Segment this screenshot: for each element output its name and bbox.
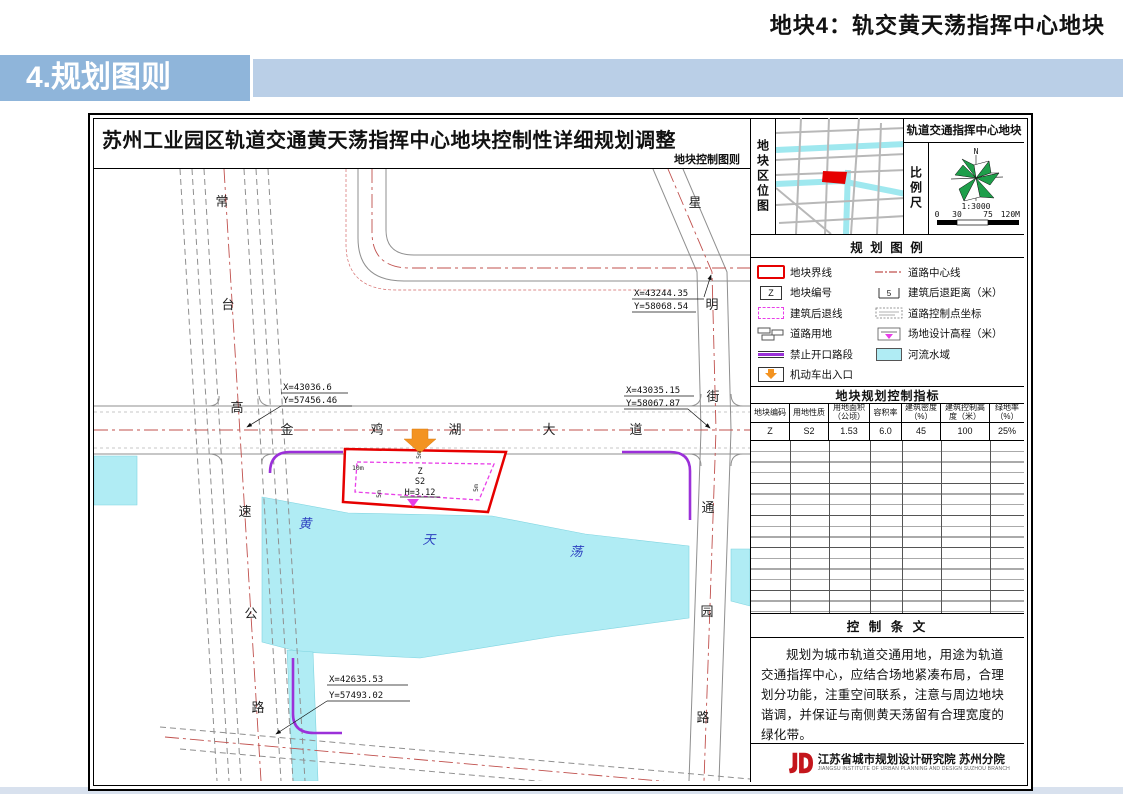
coord-x: X=43036.6 [283,383,332,393]
scale-bar-label: 比例尺 [904,143,929,234]
scale-row: 比例尺 N [904,143,1024,234]
sheet-title-block: 苏州工业园区轨道交通黄天荡指挥中心地块控制性详细规划调整 地块控制图则 [94,119,750,169]
publisher-block: 江苏省城市规划设计研究院 苏州分院 JIANGSU INSTITUTE OF U… [751,744,1024,782]
legend-label: 建筑后退距离（米） [908,285,1003,300]
road-char: 道 [629,422,642,437]
parcel-code-icon: Z [757,286,785,300]
col-header: 容积率 [870,404,902,422]
sheet-subtitle: 地块控制图则 [674,151,740,167]
cell-far: 6.0 [870,423,902,441]
building-setback-icon [757,306,785,320]
location-right: 轨道交通指挥中心地块 比例尺 N [904,118,1024,234]
setback-left-label: 10m [352,464,364,472]
road-char: 鸡 [370,422,383,437]
planning-sheet-page: 地块4：轨交黄天荡指挥中心地块 4.规划图则 苏州工业园区轨道交通黄天荡指挥中心… [0,0,1123,794]
coord-y: Y=57493.02 [329,691,383,701]
coord-x: X=42635.53 [329,675,383,685]
water-char: 黄 [298,516,313,531]
legend-label: 禁止开口路段 [790,347,853,362]
scale-bar-icon [937,220,1019,225]
legend-item: 5 建筑后退距离（米） [875,283,1022,304]
legend-label: 建筑后退线 [790,306,843,321]
plan-map: Z S2 H=3.12 10m 5m 5m 5m 常 台 高 速 公 路 金 鸡 [94,169,750,781]
compass-and-scale: N [929,143,1024,229]
cell-green: 25% [990,423,1024,441]
setback-right-label: 5m [472,484,480,492]
legend-item: 机动车出入口 [757,365,875,386]
scale-tick: 30 [952,210,962,219]
legend-title: 规 划 图 例 [751,235,1024,258]
setback-top-label: 5m [415,451,423,459]
scale-tick: 120M [1001,210,1020,219]
col-header: 建筑控制高度（米） [941,404,990,422]
road-char: 台 [221,297,234,312]
publisher-name: 江苏省城市规划设计研究院 苏州分院 [818,754,1010,767]
road-char: 路 [251,700,264,715]
info-panel: 地块区位图 轨道交通指挥中心地块 [750,118,1024,782]
sheet-title: 苏州工业园区轨道交通黄天荡指挥中心地块控制性详细规划调整 [102,124,742,153]
legend-section: 规 划 图 例 地块界线 Z 地块编号 建筑后退线 [751,235,1024,387]
road-char: 明 [705,297,718,312]
page-title: 地块4：轨交黄天荡指挥中心地块 [770,8,1105,40]
section-banner-label: 4.规划图则 [26,61,171,94]
coord-y: Y=57456.46 [283,396,337,406]
cell-height: 100 [941,423,990,441]
legend-label: 河流水域 [908,347,950,362]
site-elevation-icon [875,327,903,341]
provisions-body: 规划为城市轨道交通用地，用途为轨道交通指挥中心，应结合场地紧凑布局，合理划分功能… [751,638,1024,744]
water-char: 天 [422,532,437,547]
legend-item: 道路中心线 [875,262,1022,283]
road-char: 常 [215,194,228,209]
col-header: 用地性质 [790,404,829,422]
location-row: 地块区位图 轨道交通指挥中心地块 [751,118,1024,235]
scale-tick: 75 [983,210,993,219]
parcel-code: Z [417,467,422,477]
legend-label: 道路中心线 [908,265,961,280]
legend-item: Z 地块编号 [757,283,875,304]
col-header: 地块编码 [751,404,790,422]
road-char: 金 [280,422,293,437]
indicators-table: 地块规划控制指标 地块编码 用地性质 用地面积（公顷） 容积率 建筑密度（%） … [751,387,1024,441]
indicators-title: 地块规划控制指标 [751,387,1024,404]
road-char: 星 [688,195,701,210]
minimap-parcel [822,171,847,184]
setback-bottom-label: 5m [375,490,383,498]
road-char: 公 [244,606,257,621]
no-access-icon [757,347,785,361]
road-char: 园 [700,604,713,619]
publisher-logo-icon [787,750,813,776]
parcel-boundary-icon [757,265,785,279]
legend-label: 地块界线 [790,265,832,280]
section-banner-extension [253,59,1123,97]
road-land-icon [757,327,785,341]
legend-label: 场地设计高程（米） [908,326,1003,341]
indicators-data-row: Z S2 1.53 6.0 45 100 25% [751,423,1024,441]
publisher-name-en: JIANGSU INSTITUTE OF URBAN PLANNING AND … [818,767,1010,773]
legend-label: 机动车出入口 [790,367,853,382]
cell-density: 45 [902,423,941,441]
legend-item: 地块界线 [757,262,875,283]
drawing-sheet: 苏州工业园区轨道交通黄天荡指挥中心地块控制性详细规划调整 地块控制图则 [88,113,1033,791]
legend-label: 道路控制点坐标 [908,306,982,321]
svg-text:5: 5 [887,289,892,298]
coord-x: X=43244.35 [634,289,688,299]
empty-grid-rows [751,441,1024,614]
location-minimap [776,118,904,234]
col-header: 用地面积（公顷） [829,404,870,422]
location-map-label: 地块区位图 [751,118,776,234]
road-char: 速 [238,504,251,519]
road-char: 街 [706,389,719,404]
setback-distance-icon: 5 [875,286,903,300]
road-char: 高 [230,400,243,415]
vehicle-entrance-icon [757,368,785,382]
road-char: 大 [542,422,555,437]
cell-area: 1.53 [829,423,870,441]
road-centerline-icon [875,265,903,279]
compass-cell: N [929,143,1024,234]
coord-x: X=43035.15 [626,386,680,396]
adjacent-setback-line [346,169,670,290]
cell-parcel-code: Z [751,423,790,441]
location-minimap-svg [776,118,904,234]
location-title: 轨道交通指挥中心地块 [904,118,1024,143]
legend-item: 道路控制点坐标 [875,303,1022,324]
road-char: 通 [701,500,714,515]
provisions-title: 控 制 条 文 [751,614,1024,638]
section-banner: 4.规划图则 [0,55,250,101]
legend-item: 场地设计高程（米） [875,324,1022,345]
road-char: 湖 [448,422,461,437]
compass-north-label: N [974,147,979,156]
coord-y: Y=58068.54 [634,302,688,312]
coord-y: Y=58067.87 [626,399,680,409]
river-water-icon [875,347,903,361]
legend-item: 河流水域 [875,344,1022,365]
legend-item: 禁止开口路段 [757,344,875,365]
scale-tick: 0 [935,210,940,219]
road-char: 路 [696,710,709,725]
road-control-point-icon [875,306,903,320]
legend-item: 建筑后退线 [757,303,875,324]
indicators-header-row: 地块编码 用地性质 用地面积（公顷） 容积率 建筑密度（%） 建筑控制高度（米）… [751,404,1024,423]
legend-label: 地块编号 [790,285,832,300]
water-char: 荡 [569,544,584,559]
parcel-elevation: H=3.12 [405,488,436,498]
parcel-land-use: S2 [415,477,425,487]
coord-callout-3: X=43036.6 Y=57456.46 [247,383,352,427]
col-header: 绿地率（%） [990,404,1024,422]
legend-item: 道路用地 [757,324,875,345]
legend-label: 道路用地 [790,326,832,341]
cell-land-use: S2 [790,423,829,441]
col-header: 建筑密度（%） [902,404,941,422]
